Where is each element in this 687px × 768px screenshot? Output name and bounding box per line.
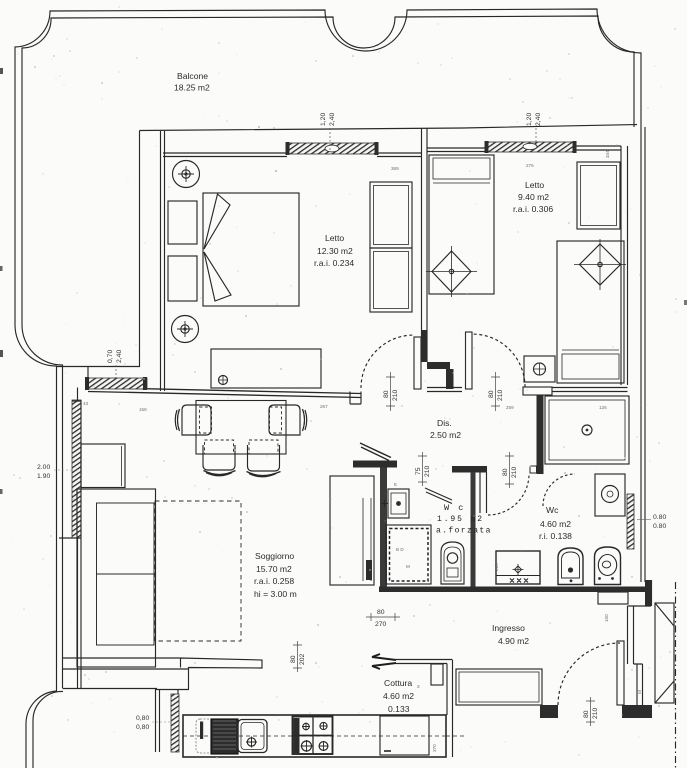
svg-text:15.70 m2: 15.70 m2 — [256, 564, 292, 574]
svg-text:hi = 3.00 m: hi = 3.00 m — [254, 589, 297, 599]
svg-text:r.a.i. 0.258: r.a.i. 0.258 — [254, 576, 294, 586]
svg-text:M: M — [406, 564, 410, 569]
svg-text:2.50 m2: 2.50 m2 — [430, 430, 461, 440]
svg-text:210: 210 — [511, 466, 518, 478]
svg-text:80: 80 — [583, 710, 590, 718]
svg-text:Soggiorno: Soggiorno — [255, 551, 294, 561]
svg-text:210: 210 — [497, 389, 504, 401]
svg-text:Balcone: Balcone — [177, 71, 208, 81]
svg-text:4.60 m2: 4.60 m2 — [383, 691, 414, 701]
svg-text:0.80: 0.80 — [653, 514, 666, 521]
svg-text:100: 100 — [604, 614, 609, 622]
svg-text:75: 75 — [415, 467, 422, 475]
svg-text:M: M — [637, 690, 642, 694]
svg-text:W c: W c — [444, 503, 465, 513]
svg-text:267: 267 — [320, 404, 328, 409]
svg-text:9.40 m2: 9.40 m2 — [518, 192, 549, 202]
svg-text:0.80: 0.80 — [653, 523, 666, 530]
svg-text:2.00: 2.00 — [37, 464, 50, 471]
svg-text:0,80: 0,80 — [136, 724, 149, 731]
svg-text:a.forzata: a.forzata — [436, 527, 492, 536]
svg-text:210: 210 — [424, 465, 431, 477]
svg-text:0.133: 0.133 — [388, 704, 410, 714]
svg-text:Ingresso: Ingresso — [492, 623, 525, 633]
svg-text:B D: B D — [396, 547, 404, 552]
svg-text:Letto: Letto — [525, 180, 544, 190]
svg-text:1,20: 1,20 — [526, 113, 533, 126]
svg-text:270: 270 — [375, 621, 387, 628]
svg-text:1.90: 1.90 — [37, 473, 50, 480]
svg-text:1.95 m2: 1.95 m2 — [437, 515, 484, 524]
svg-text:0,80: 0,80 — [136, 715, 149, 722]
svg-text:80: 80 — [290, 655, 297, 663]
svg-text:344: 344 — [605, 150, 610, 158]
svg-text:275: 275 — [526, 163, 534, 168]
svg-text:80: 80 — [488, 390, 495, 398]
svg-text:158: 158 — [139, 407, 147, 412]
svg-text:126: 126 — [599, 405, 607, 410]
svg-text:r.a.i. 0.234: r.a.i. 0.234 — [314, 258, 354, 268]
svg-text:2,40: 2,40 — [116, 350, 123, 363]
svg-text:369: 369 — [391, 166, 399, 171]
svg-text:r.a.i. 0.306: r.a.i. 0.306 — [513, 204, 553, 214]
svg-text:213: 213 — [494, 563, 499, 571]
svg-text:2,40: 2,40 — [329, 113, 336, 126]
svg-text:Wc: Wc — [546, 505, 559, 515]
svg-text:4.60 m2: 4.60 m2 — [540, 519, 571, 529]
svg-text:210: 210 — [392, 389, 399, 401]
svg-text:202: 202 — [299, 653, 306, 665]
svg-text:3: 3 — [417, 684, 420, 689]
svg-text:370: 370 — [432, 744, 437, 752]
svg-text:Letto: Letto — [325, 233, 344, 243]
svg-text:Cottura: Cottura — [384, 678, 412, 688]
svg-text:4.90 m2: 4.90 m2 — [498, 636, 529, 646]
svg-text:0,70: 0,70 — [107, 350, 114, 363]
svg-text:18.25 m2: 18.25 m2 — [174, 83, 210, 93]
svg-text:80: 80 — [377, 609, 385, 616]
svg-text:80: 80 — [383, 390, 390, 398]
svg-text:1,20: 1,20 — [320, 113, 327, 126]
svg-text:2,40: 2,40 — [535, 113, 542, 126]
svg-text:43: 43 — [83, 401, 89, 406]
svg-text:12.30 m2: 12.30 m2 — [317, 246, 353, 256]
svg-text:259: 259 — [506, 405, 514, 410]
svg-text:210: 210 — [592, 707, 599, 719]
svg-text:80: 80 — [502, 468, 509, 476]
svg-text:E: E — [394, 482, 397, 487]
svg-text:r.i. 0.138: r.i. 0.138 — [539, 531, 572, 541]
